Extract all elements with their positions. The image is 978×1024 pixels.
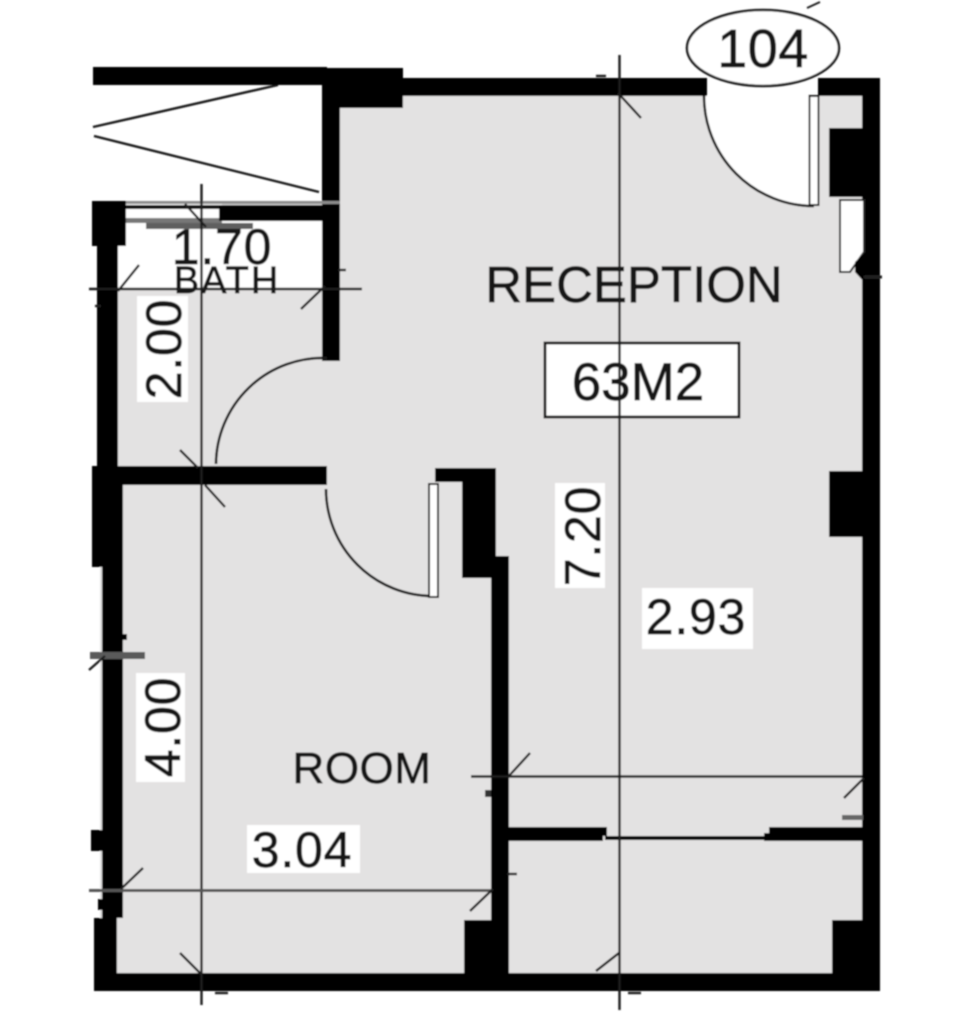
svg-text:RECEPTION: RECEPTION bbox=[485, 256, 783, 313]
svg-text:104: 104 bbox=[717, 19, 809, 79]
svg-text:2.00: 2.00 bbox=[136, 299, 192, 400]
svg-text:4.00: 4.00 bbox=[135, 677, 191, 778]
svg-text:2.93: 2.93 bbox=[646, 589, 747, 645]
svg-text:BATH: BATH bbox=[174, 260, 281, 302]
svg-text:63M2: 63M2 bbox=[572, 353, 705, 412]
svg-text:3.04: 3.04 bbox=[252, 822, 353, 878]
svg-text:ROOM: ROOM bbox=[293, 744, 432, 793]
svg-text:7.20: 7.20 bbox=[555, 486, 611, 587]
